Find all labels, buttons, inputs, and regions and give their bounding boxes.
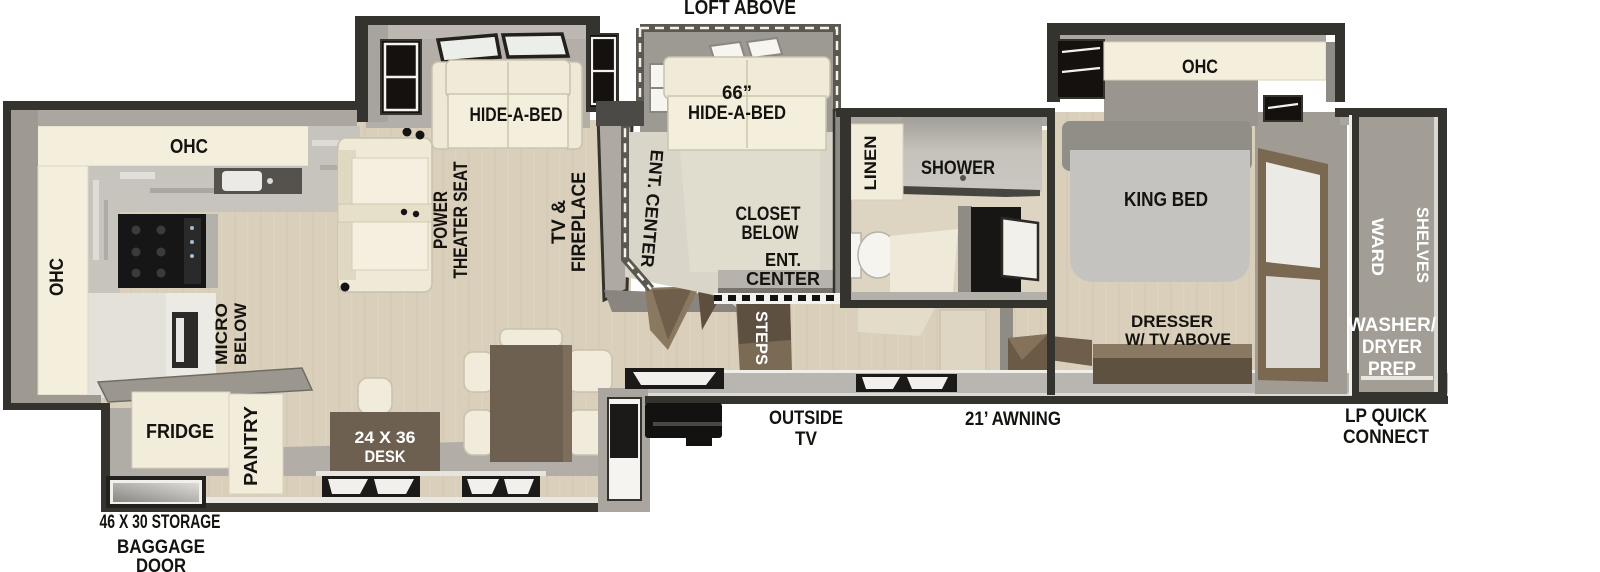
svg-text:TV: TV: [795, 429, 817, 450]
svg-text:DESK: DESK: [365, 447, 407, 466]
svg-text:CLOSET: CLOSET: [736, 204, 801, 225]
svg-text:WARD: WARD: [1368, 218, 1387, 276]
svg-text:46 X 30 STORAGE: 46 X 30 STORAGE: [100, 512, 221, 533]
svg-text:OUTSIDE: OUTSIDE: [769, 408, 843, 429]
svg-text:FIREPLACE: FIREPLACE: [569, 172, 590, 272]
svg-text:PANTRY: PANTRY: [241, 406, 261, 486]
svg-text:DRESSER: DRESSER: [1131, 312, 1213, 331]
svg-text:THEATER SEAT: THEATER SEAT: [451, 161, 472, 278]
svg-text:24 X 36: 24 X 36: [355, 428, 416, 447]
svg-text:PREP: PREP: [1368, 359, 1416, 380]
svg-text:OHC: OHC: [47, 258, 68, 296]
svg-text:SHELVES: SHELVES: [1413, 207, 1432, 283]
svg-text:WASHER/: WASHER/: [1348, 315, 1437, 336]
svg-text:CONNECT: CONNECT: [1343, 427, 1429, 448]
svg-text:BELOW: BELOW: [231, 302, 250, 365]
svg-text:MICRO: MICRO: [212, 303, 231, 365]
svg-text:66”: 66”: [722, 83, 752, 104]
svg-text:OHC: OHC: [1182, 57, 1218, 78]
svg-text:ENT.: ENT.: [765, 250, 801, 270]
svg-text:POWER: POWER: [431, 191, 452, 249]
svg-text:SHOWER: SHOWER: [921, 158, 995, 179]
svg-text:BAGGAGE: BAGGAGE: [117, 537, 205, 558]
svg-text:KING BED: KING BED: [1124, 189, 1208, 211]
svg-text:21’ AWNING: 21’ AWNING: [965, 409, 1061, 430]
svg-text:DRYER: DRYER: [1362, 337, 1422, 358]
svg-text:OHC: OHC: [170, 136, 208, 158]
svg-text:LOFT ABOVE: LOFT ABOVE: [684, 0, 796, 19]
svg-text:LP QUICK: LP QUICK: [1345, 406, 1427, 427]
svg-text:STEPS: STEPS: [752, 311, 771, 365]
svg-text:FRIDGE: FRIDGE: [146, 421, 214, 443]
svg-text:DOOR: DOOR: [136, 556, 186, 572]
svg-text:LINEN: LINEN: [861, 136, 880, 191]
svg-text:BELOW: BELOW: [742, 223, 799, 244]
svg-text:TV &: TV &: [549, 200, 570, 244]
svg-text:HIDE-A-BED: HIDE-A-BED: [688, 103, 786, 124]
svg-text:CENTER: CENTER: [746, 269, 820, 289]
svg-text:HIDE-A-BED: HIDE-A-BED: [470, 105, 563, 126]
svg-text:W/ TV ABOVE: W/ TV ABOVE: [1125, 330, 1231, 349]
